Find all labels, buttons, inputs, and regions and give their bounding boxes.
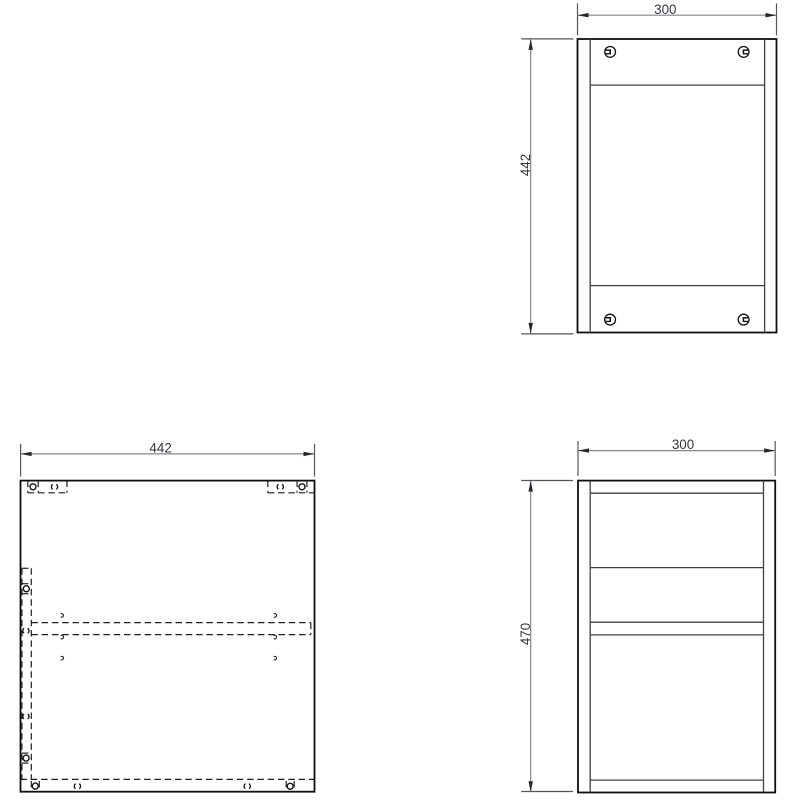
svg-text:300: 300	[672, 437, 694, 452]
svg-text:300: 300	[654, 2, 676, 17]
svg-text:442: 442	[149, 440, 171, 455]
svg-text:442: 442	[518, 154, 533, 176]
svg-text:470: 470	[518, 623, 533, 645]
